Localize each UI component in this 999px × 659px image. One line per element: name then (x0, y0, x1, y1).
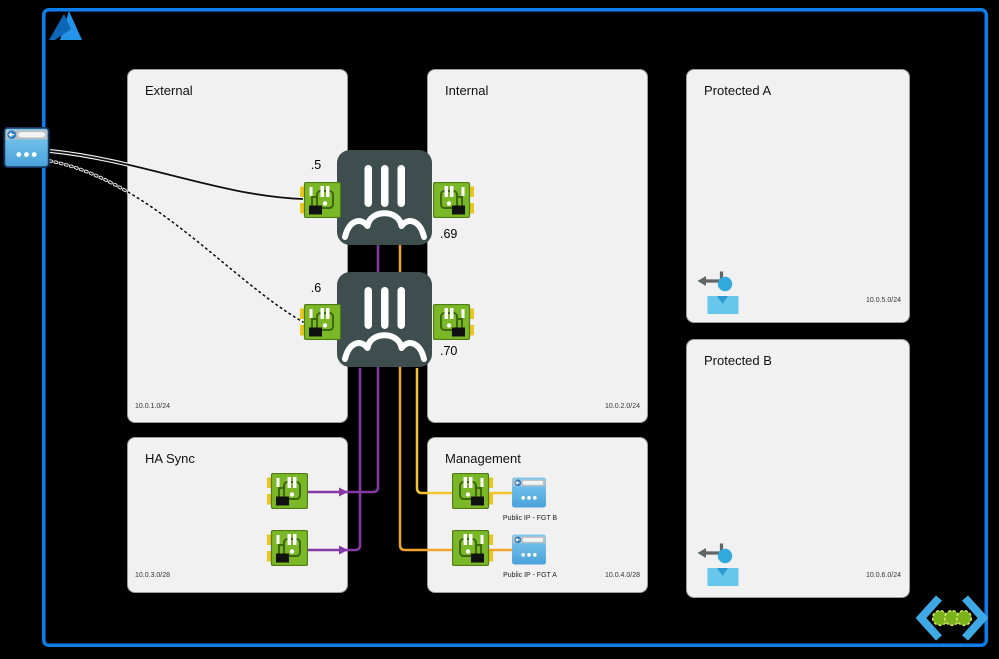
azure-logo-icon (48, 9, 83, 42)
nic-fgt-a-external-icon (300, 182, 341, 218)
subnet-label: 10.0.6.0/24 (866, 572, 901, 579)
nic-ha-sync-fgt-b-icon (267, 530, 308, 566)
diagram-canvas: External 10.0.1.0/24 Internal 10.0.2.0/2… (0, 0, 999, 659)
subnet-label: 10.0.4.0/28 (605, 572, 640, 579)
zone-internal: Internal 10.0.2.0/24 (427, 69, 648, 423)
subnet-label: 10.0.3.0/28 (135, 572, 170, 579)
nic-fgt-a-internal-icon (433, 182, 474, 218)
fgt-b-internal-ip-label: .70 (440, 344, 457, 358)
public-ip-fgt-a-icon (511, 534, 547, 565)
nic-fgt-b-external-icon (300, 304, 341, 340)
zone-title: Internal (445, 83, 488, 98)
nic-mgmt-fgt-a-icon (452, 530, 493, 566)
fgt-b-external-ip-label: .6 (303, 281, 329, 295)
zone-title: External (145, 83, 193, 98)
load-balancer-icon (911, 590, 993, 646)
subnet-label: 10.0.1.0/24 (135, 403, 170, 410)
zone-ha-sync: HA Sync 10.0.3.0/28 (127, 437, 348, 593)
fortigate-a-icon (337, 150, 432, 245)
fgt-a-internal-ip-label: .69 (440, 227, 457, 241)
subnet-label: 10.0.2.0/24 (605, 403, 640, 410)
nic-ha-sync-fgt-a-icon (267, 473, 308, 509)
fortigate-b-icon (337, 272, 432, 367)
zone-title: HA Sync (145, 451, 195, 466)
public-ip-fgt-b-icon (511, 477, 547, 508)
fgt-a-external-ip-label: .5 (303, 158, 329, 172)
zone-title: Protected B (704, 353, 772, 368)
nic-fgt-b-internal-icon (433, 304, 474, 340)
public-ip-fgt-a-label: Public IP - FGT A (486, 572, 574, 579)
protected-b-user-icon (695, 540, 741, 586)
nic-mgmt-fgt-b-icon (452, 473, 493, 509)
protected-a-user-icon (695, 268, 741, 314)
zone-title: Management (445, 451, 521, 466)
subnet-label: 10.0.5.0/24 (866, 297, 901, 304)
public-ip-fgt-b-label: Public IP - FGT B (486, 515, 574, 522)
zone-title: Protected A (704, 83, 771, 98)
edge-public-ip-icon (3, 127, 50, 168)
zone-external: External 10.0.1.0/24 (127, 69, 348, 423)
